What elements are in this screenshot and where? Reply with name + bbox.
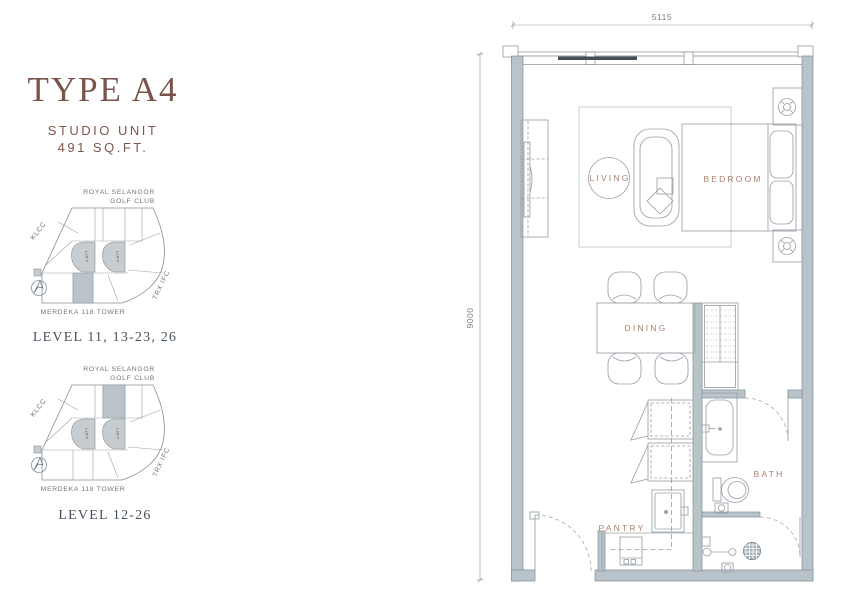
lift-label-2: LIFT xyxy=(115,251,120,263)
pantry-cabinets xyxy=(631,400,693,483)
ac-unit-bottom xyxy=(773,230,802,262)
bath-wall-left xyxy=(702,390,745,398)
key-plan-caption-2: LEVEL 12-26 xyxy=(5,508,205,524)
pillow xyxy=(770,131,793,178)
dimension-width: 5115 xyxy=(511,12,814,29)
floor-plan-drawing: 5115 9000 xyxy=(440,0,854,609)
key-plan-level-11: ROYAL SELANGOR GOLF CLUB LIFT LIFT KLCC … xyxy=(10,183,200,318)
key-plan-label-golf-1: ROYAL SELANGOR xyxy=(83,366,155,373)
bidet-spray xyxy=(715,503,728,513)
chair xyxy=(655,353,688,384)
highlighted-unit xyxy=(73,273,93,303)
wardrobe xyxy=(702,303,738,390)
tv xyxy=(524,142,530,217)
living-area: LIVING xyxy=(521,107,731,247)
lift-label-1: LIFT xyxy=(84,428,89,440)
key-plan-building-outline: LIFT LIFT xyxy=(34,208,164,303)
pantry-label: PANTRY xyxy=(599,523,646,533)
pantry-sink xyxy=(652,490,688,532)
key-plan-label-merdeka: MERDEKA 118 TOWER xyxy=(41,309,126,316)
dining-area: DINING xyxy=(597,272,695,384)
key-plan-level-12: ROYAL SELANGOR GOLF CLUB LIFT LIFT KLCC … xyxy=(10,360,200,495)
bath-label: BATH xyxy=(754,469,785,479)
toilet xyxy=(713,478,749,503)
lift-core-1 xyxy=(71,242,95,272)
counter-edge xyxy=(602,533,693,570)
pantry-wall xyxy=(598,531,605,571)
dimension-height: 9000 xyxy=(465,52,484,582)
washer xyxy=(620,537,642,565)
dimension-height-value: 9000 xyxy=(465,308,475,329)
key-plan-label-merdeka: MERDEKA 118 TOWER xyxy=(41,486,126,493)
vanity-sink xyxy=(702,393,737,462)
floor-plan-page: TYPE A4 STUDIO UNIT 491 SQ.FT. ROYAL SEL… xyxy=(0,0,854,609)
unit-type-title: TYPE A4 xyxy=(8,70,198,110)
bath-wall-right xyxy=(788,390,802,398)
key-plan-caption-1: LEVEL 11, 13-23, 26 xyxy=(5,330,205,346)
lift-core-1 xyxy=(71,419,95,449)
ac-unit-top xyxy=(773,88,802,125)
bedroom-label: BEDROOM xyxy=(703,174,762,184)
chair xyxy=(608,272,641,303)
shower-mixer xyxy=(702,537,710,546)
lift-label-1: LIFT xyxy=(84,251,89,263)
chair xyxy=(654,272,687,303)
bedroom-area: BEDROOM xyxy=(682,88,802,262)
key-plan-label-golf-2: GOLF CLUB xyxy=(110,198,155,205)
shower xyxy=(702,517,800,572)
dining-label: DINING xyxy=(625,323,668,333)
tv-console xyxy=(521,120,548,237)
key-plan-label-trx: TRX IFC xyxy=(152,447,172,478)
bath-door xyxy=(745,398,788,441)
lift-label-2: LIFT xyxy=(115,428,120,440)
compass-icon xyxy=(32,458,47,473)
key-plan-label-klcc: KLCC xyxy=(30,398,48,419)
key-plan-label-trx: TRX IFC xyxy=(152,270,172,301)
unit-category: STUDIO UNIT xyxy=(8,123,198,138)
shower-partition xyxy=(702,512,760,517)
pillow xyxy=(770,181,793,224)
side-table xyxy=(647,178,673,214)
window-wall xyxy=(512,52,804,65)
key-plan-label-golf-2: GOLF CLUB xyxy=(110,375,155,382)
pantry-area: PANTRY xyxy=(599,398,693,570)
compass-icon xyxy=(32,281,47,296)
entry-door xyxy=(530,512,591,571)
bath-area: BATH xyxy=(702,393,800,572)
bottom-wall-left xyxy=(512,570,536,581)
curtain-track xyxy=(558,57,637,61)
highlighted-unit xyxy=(103,385,125,418)
sofa xyxy=(634,129,679,226)
lift-core-2 xyxy=(102,242,125,272)
exterior-walls xyxy=(503,46,813,581)
bottom-wall-right xyxy=(595,570,813,581)
key-plan-building-outline: LIFT LIFT xyxy=(34,385,164,480)
dimension-width-value: 5115 xyxy=(652,12,672,22)
core-wall xyxy=(693,303,702,571)
chair xyxy=(608,353,641,384)
lift-core-2 xyxy=(102,419,125,449)
key-plan-label-golf-1: ROYAL SELANGOR xyxy=(83,189,155,196)
key-plan-label-klcc: KLCC xyxy=(30,221,48,242)
unit-area: 491 SQ.FT. xyxy=(8,140,198,155)
right-wall xyxy=(802,56,813,581)
living-label: LIVING xyxy=(589,173,630,183)
